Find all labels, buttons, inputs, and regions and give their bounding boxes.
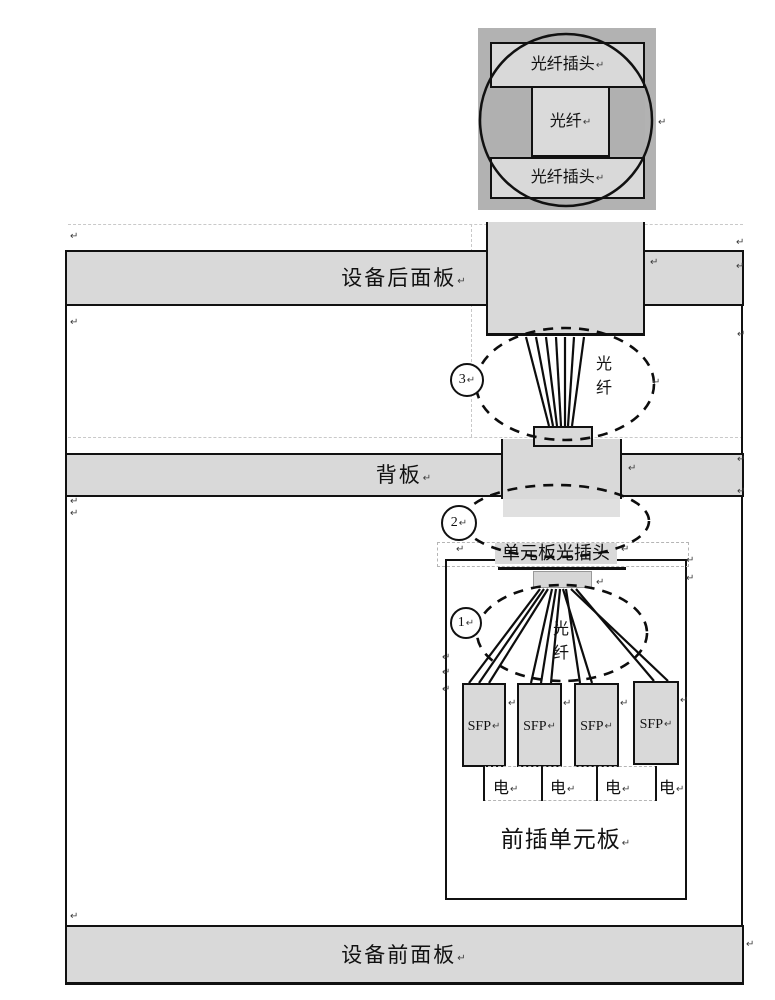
fiber-core-label: 光纤 [550, 113, 582, 130]
backplane-slot-column [501, 439, 622, 499]
pilcrow-mark: ↵ [650, 258, 658, 268]
unit-board-title: 前插单元板↵ [445, 820, 687, 854]
pilcrow-mark: ↵ [676, 784, 684, 795]
rear-fiber-column [486, 222, 645, 336]
fiber-cladding-right [610, 90, 645, 155]
pilcrow-mark: ↵ [508, 699, 516, 709]
patent-figure-page: 光纤插头↵ 光纤↵ 光纤插头↵ 设备后面板↵ 背板↵ 单元板光插头 [0, 0, 775, 1000]
pilcrow-mark: ↵ [737, 455, 745, 465]
pilcrow-mark: ↵ [628, 464, 636, 474]
pilcrow-mark: ↵ [70, 497, 78, 507]
region3-dashed-ellipse [476, 328, 654, 440]
fiber-plug-top-label: 光纤插头 [531, 56, 595, 73]
pilcrow-mark: ↵ [457, 276, 467, 287]
fiber-line [536, 337, 553, 426]
fiber-label-region1: 光纤 [551, 618, 571, 666]
electrical-tick-4 [655, 766, 657, 801]
pilcrow-mark: ↵ [492, 721, 500, 732]
pilcrow-mark: ↵ [547, 721, 555, 732]
backplane-slot-column-lower [503, 499, 620, 517]
pilcrow-mark: ↵ [563, 699, 571, 709]
pilcrow-mark: ↵ [652, 378, 660, 388]
pilcrow-mark: ↵ [596, 60, 604, 71]
fiber-plug-top-box: 光纤插头↵ [490, 42, 645, 88]
sfp-label-1: SFP [468, 719, 491, 734]
unit-board-top-thick-line [498, 567, 626, 570]
sfp-module-3: SFP↵ [574, 683, 619, 767]
pilcrow-mark: ↵ [442, 685, 450, 695]
sfp-module-2: SFP↵ [517, 683, 562, 767]
pilcrow-mark: ↵ [686, 556, 694, 566]
rear-panel-label: 设备后面板 [341, 266, 456, 290]
fiber-line [568, 337, 574, 426]
callout-number-1: 1 [458, 615, 465, 631]
backplane-connector-block [533, 426, 593, 447]
pilcrow-mark: ↵ [70, 232, 78, 242]
callout-circle-3: 3↵ [450, 363, 484, 397]
backplane-bar: 背板↵ [65, 453, 744, 497]
pilcrow-mark: ↵ [70, 318, 78, 328]
pilcrow-mark: ↵ [596, 173, 604, 184]
sfp-module-4: SFP↵ [633, 681, 679, 765]
electrical-label-3: 电↵ [605, 774, 630, 798]
electrical-label-2: 电↵ [550, 774, 575, 798]
canvas-guide-middle [68, 437, 743, 438]
chassis-right-wall [741, 252, 743, 985]
fiber-line [556, 337, 561, 426]
backplane-label: 背板 [376, 463, 422, 487]
fiber-core-box: 光纤↵ [531, 86, 610, 157]
electrical-label-1: 电↵ [493, 774, 518, 798]
pilcrow-mark: ↵ [658, 118, 666, 128]
pilcrow-mark: ↵ [457, 953, 467, 964]
fiber-line [546, 337, 557, 426]
chassis-left-wall [65, 252, 67, 985]
pilcrow-mark: ↵ [456, 545, 464, 555]
callout-number-3: 3 [459, 372, 466, 388]
callout-circle-1: 1↵ [450, 607, 482, 639]
fiber-plug-bottom-label: 光纤插头 [531, 169, 595, 186]
pilcrow-mark: ↵ [510, 784, 518, 795]
electrical-tick-2 [541, 766, 543, 801]
sfp-module-1: SFP↵ [462, 683, 506, 767]
pilcrow-mark: ↵ [686, 574, 694, 584]
callout-circle-2: 2↵ [441, 505, 477, 541]
pilcrow-mark: ↵ [622, 838, 631, 849]
pilcrow-mark: ↵ [442, 653, 450, 663]
pilcrow-mark: ↵ [466, 618, 474, 629]
pilcrow-mark: ↵ [70, 912, 78, 922]
fiber-line [572, 337, 584, 426]
pilcrow-mark: ↵ [70, 509, 78, 519]
pilcrow-mark: ↵ [442, 668, 450, 678]
sfp-label-4: SFP [640, 717, 663, 732]
fiber-line [526, 337, 549, 426]
pilcrow-mark: ↵ [737, 487, 745, 497]
pilcrow-mark: ↵ [583, 117, 591, 128]
electrical-label-4: 电↵ [659, 774, 684, 798]
unit-board-connector-block [533, 571, 592, 588]
fiber-plug-bottom-box: 光纤插头↵ [490, 157, 645, 199]
pilcrow-mark: ↵ [620, 699, 628, 709]
fiber-cladding-left [490, 90, 531, 155]
callout-number-2: 2 [451, 515, 458, 531]
pilcrow-mark: ↵ [467, 375, 475, 386]
pilcrow-mark: ↵ [621, 545, 629, 555]
pilcrow-mark: ↵ [567, 784, 575, 795]
sfp-label-3: SFP [580, 719, 603, 734]
pilcrow-mark: ↵ [736, 262, 744, 272]
pilcrow-mark: ↵ [596, 578, 604, 588]
pilcrow-mark: ↵ [680, 696, 688, 706]
electrical-tick-3 [596, 766, 598, 801]
pilcrow-mark: ↵ [736, 238, 744, 248]
pilcrow-mark: ↵ [423, 473, 433, 484]
pilcrow-mark: ↵ [746, 940, 754, 950]
fiber-label-region3: 光纤 [594, 353, 614, 401]
front-panel-label: 设备前面板 [341, 943, 456, 967]
sfp-label-2: SFP [523, 719, 546, 734]
pilcrow-mark: ↵ [737, 330, 745, 340]
electrical-tick-1 [483, 766, 485, 801]
pilcrow-mark: ↵ [459, 518, 467, 529]
optical-plug-label: 单元板光插头 [502, 543, 610, 563]
front-panel-bar: 设备前面板↵ [65, 925, 744, 985]
fiber-cable-photo: 光纤插头↵ 光纤↵ 光纤插头↵ [478, 28, 656, 210]
pilcrow-mark: ↵ [664, 719, 672, 730]
pilcrow-mark: ↵ [604, 721, 612, 732]
pilcrow-mark: ↵ [622, 784, 630, 795]
optical-plug-label-box: 单元板光插头 [495, 543, 617, 564]
